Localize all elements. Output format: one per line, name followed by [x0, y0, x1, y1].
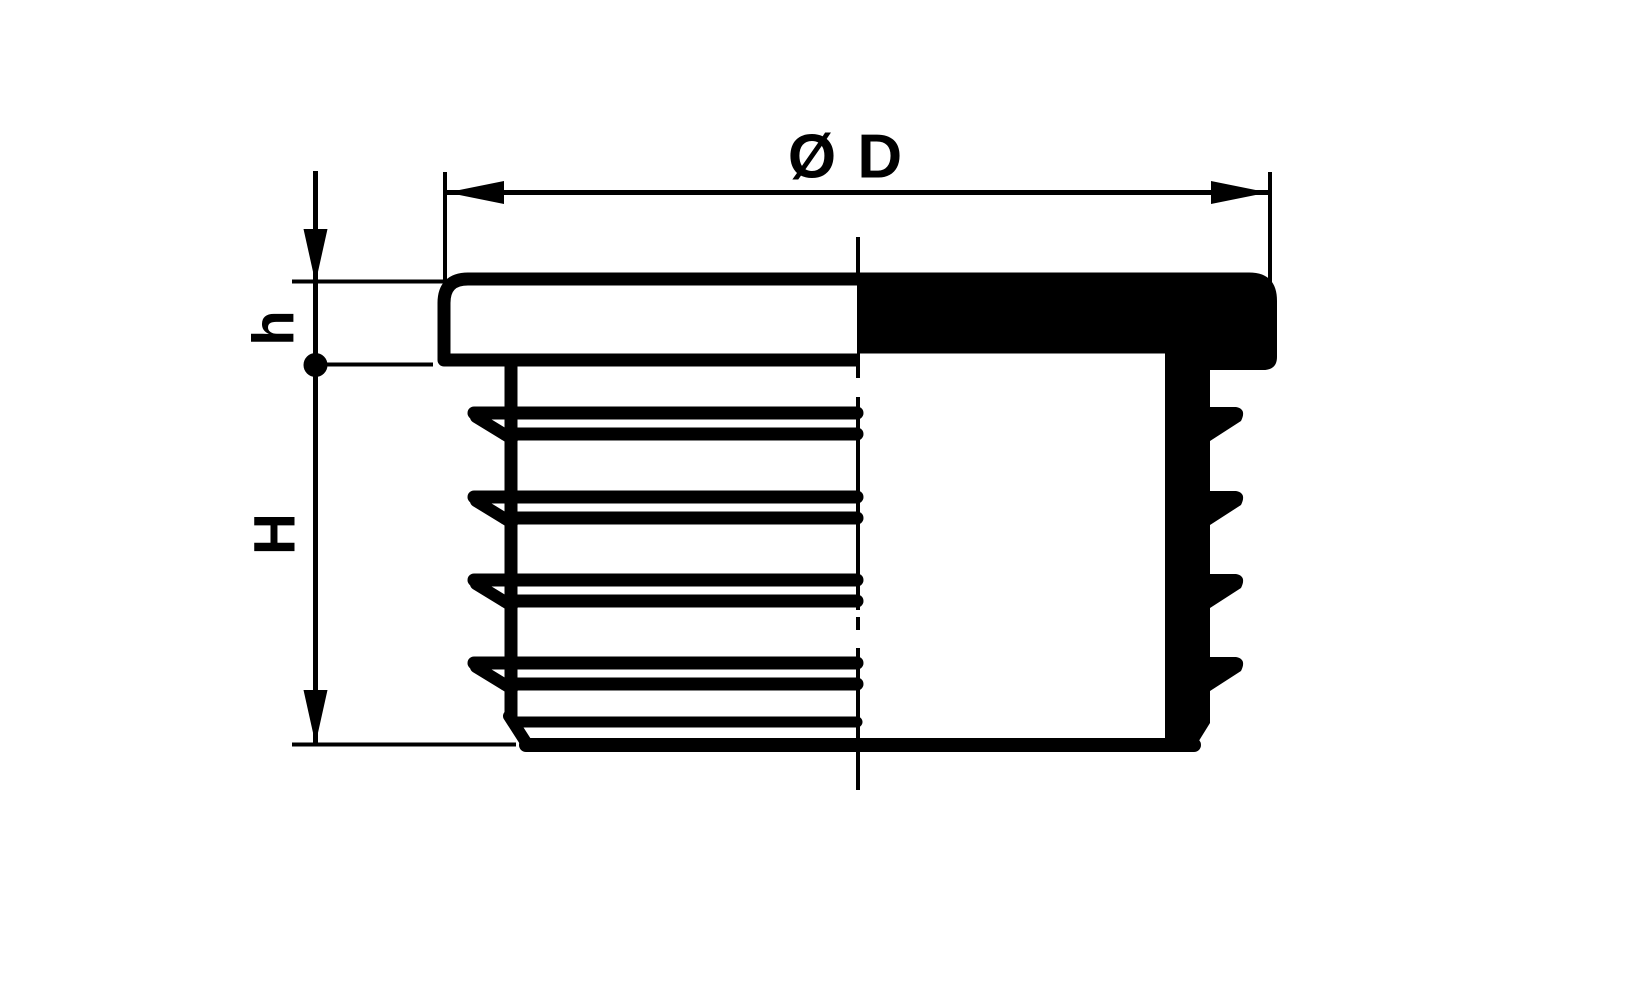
- head-height-dimension-label: h: [242, 310, 307, 345]
- insert-cap-left-outline: [444, 279, 857, 360]
- right-section-silhouette: [857, 273, 1277, 753]
- head-height-arrow-icon: [304, 229, 328, 283]
- diameter-arrow-left-icon: [447, 181, 504, 204]
- drawing-canvas: Ø D h H: [0, 0, 1650, 990]
- body-height-arrow-icon: [304, 690, 328, 744]
- technical-drawing: Ø D h H: [0, 0, 1650, 990]
- diameter-dimension-label: Ø D: [788, 123, 904, 192]
- insert-body-left-view: [474, 360, 1194, 745]
- cap-left-outline-path: [444, 279, 857, 360]
- insert-right-half-section: [857, 273, 1277, 753]
- body-height-dimension-label: H: [243, 513, 308, 555]
- dimension-dot-icon: [304, 353, 328, 377]
- diameter-arrow-right-icon: [1211, 181, 1268, 204]
